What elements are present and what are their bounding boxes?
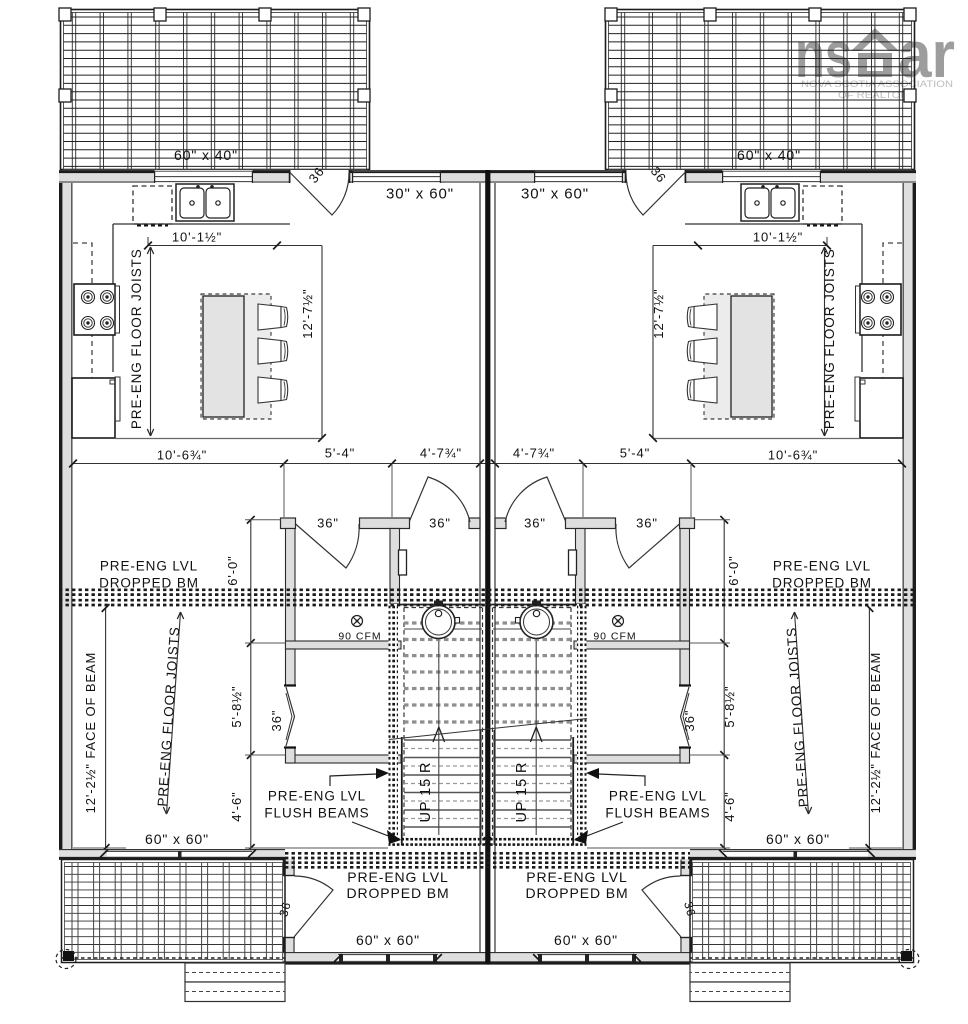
svg-text:10'-1½": 10'-1½" (753, 230, 803, 245)
svg-text:UP 15 R: UP 15 R (418, 762, 434, 823)
svg-text:90 CFM: 90 CFM (593, 631, 636, 643)
svg-text:10'-6¾": 10'-6¾" (157, 448, 207, 463)
svg-text:DROPPED BM: DROPPED BM (772, 576, 872, 591)
svg-text:36": 36" (524, 516, 546, 531)
svg-text:60" x 40": 60" x 40" (737, 147, 801, 163)
svg-text:5'-4": 5'-4" (325, 446, 355, 461)
svg-text:4'-7¾": 4'-7¾" (420, 446, 462, 461)
svg-text:PRE-ENG FLOOR JOISTS: PRE-ENG FLOOR JOISTS (129, 248, 144, 429)
svg-text:60" x 60": 60" x 60" (766, 831, 830, 847)
svg-text:4'-6": 4'-6" (229, 791, 244, 821)
svg-text:30" x 60": 30" x 60" (521, 185, 589, 202)
svg-text:5'-8½": 5'-8½" (722, 685, 737, 727)
svg-text:10'-1½": 10'-1½" (172, 230, 222, 245)
svg-text:PRE-ENG LVL: PRE-ENG LVL (773, 559, 871, 574)
svg-text:36": 36" (269, 710, 284, 732)
svg-text:4'-6": 4'-6" (722, 791, 737, 821)
svg-text:PRE-ENG LVL: PRE-ENG LVL (100, 559, 198, 574)
svg-text:36": 36" (317, 516, 339, 531)
svg-text:12'-2½" FACE OF BEAM: 12'-2½" FACE OF BEAM (868, 652, 883, 814)
svg-text:UP 15 R: UP 15 R (514, 762, 530, 823)
svg-text:5'-4": 5'-4" (620, 446, 650, 461)
svg-text:90 CFM: 90 CFM (338, 631, 381, 643)
svg-text:PRE-ENG FLOOR JOISTS: PRE-ENG FLOOR JOISTS (822, 248, 837, 429)
svg-text:6'-0": 6'-0" (726, 555, 741, 585)
svg-text:PRE-ENG LVL: PRE-ENG LVL (268, 789, 366, 804)
svg-text:5'-8½": 5'-8½" (229, 685, 244, 727)
svg-text:12'-2½" FACE OF BEAM: 12'-2½" FACE OF BEAM (83, 652, 98, 814)
svg-text:FLUSH BEAMS: FLUSH BEAMS (605, 806, 710, 821)
svg-text:DROPPED BM: DROPPED BM (525, 885, 628, 901)
svg-text:6'-0": 6'-0" (225, 555, 240, 585)
svg-text:10'-6¾": 10'-6¾" (768, 448, 818, 463)
svg-text:36": 36" (636, 516, 658, 531)
svg-text:4'-7¾": 4'-7¾" (513, 446, 555, 461)
svg-text:12'-7½": 12'-7½" (651, 288, 666, 338)
svg-text:60" x 40": 60" x 40" (174, 147, 238, 163)
svg-text:PRE-ENG LVL: PRE-ENG LVL (609, 789, 707, 804)
svg-text:60" x 60": 60" x 60" (356, 932, 420, 948)
svg-text:PRE-ENG LVL: PRE-ENG LVL (526, 869, 627, 885)
svg-text:30" x 60": 30" x 60" (386, 185, 454, 202)
svg-text:PRE-ENG LVL: PRE-ENG LVL (347, 869, 448, 885)
svg-text:DROPPED BM: DROPPED BM (99, 576, 199, 591)
svg-text:DROPPED BM: DROPPED BM (346, 885, 449, 901)
svg-text:NOVA SCOTIA ASSOCIATION: NOVA SCOTIA ASSOCIATION (801, 79, 953, 89)
svg-text:FLUSH BEAMS: FLUSH BEAMS (264, 806, 369, 821)
svg-text:12'-7½": 12'-7½" (300, 288, 315, 338)
svg-text:60" x 60": 60" x 60" (554, 932, 618, 948)
svg-text:60" x 60": 60" x 60" (145, 831, 209, 847)
svg-text:36": 36" (429, 516, 451, 531)
svg-text:36": 36" (682, 710, 697, 732)
